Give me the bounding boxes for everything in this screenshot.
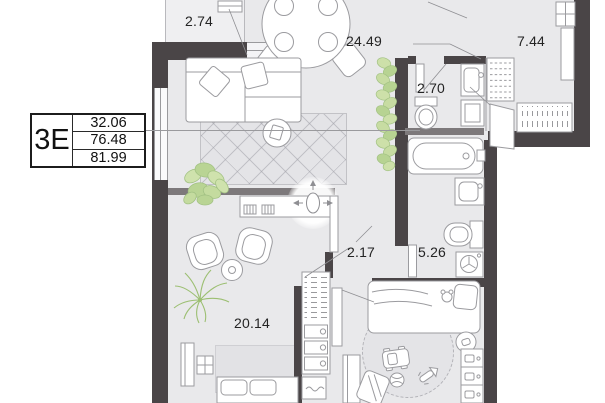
wall-corridor-stub <box>325 252 333 278</box>
wall-right-lower <box>484 140 497 403</box>
unit-area-value: 81.99 <box>73 150 144 166</box>
room-label-bathroom: 5.26 <box>418 244 446 260</box>
balcony-door-opening <box>247 42 282 60</box>
unit-area-rows: 32.06 76.48 81.99 <box>73 115 144 166</box>
room-label-wc: 2.70 <box>417 80 445 96</box>
wall-bedroom-kids-divider <box>294 286 302 403</box>
wall-step <box>488 131 590 147</box>
wall-kids-top <box>372 278 497 287</box>
panorama-point-glow <box>287 177 339 229</box>
unit-area-value: 76.48 <box>73 132 144 149</box>
floor-plan: 2.74 24.49 7.44 2.70 2.17 5.26 20.14 3Е … <box>0 0 605 403</box>
kids-round-rug <box>362 306 454 398</box>
wall-wc-top-a <box>408 56 416 64</box>
living-rug <box>200 113 347 185</box>
wall-balcony <box>152 42 247 60</box>
window-left <box>154 88 168 180</box>
wall-bath-west <box>395 58 408 246</box>
room-label-bedroom: 20.14 <box>234 315 270 331</box>
unit-type-label: 3Е <box>32 115 73 166</box>
room-label-corridor: 2.17 <box>347 244 375 260</box>
wall-wc-top-b <box>444 56 486 64</box>
room-label-balcony: 2.74 <box>185 13 213 29</box>
unit-card: 3Е 32.06 76.48 81.99 <box>30 113 146 168</box>
unit-area-value: 32.06 <box>73 115 144 132</box>
room-label-hallway: 7.44 <box>517 33 545 49</box>
unit-card-leader-line <box>146 130 420 131</box>
bedroom-rug <box>215 345 302 393</box>
wall-right-upper <box>574 0 590 147</box>
room-label-living: 24.49 <box>346 33 382 49</box>
